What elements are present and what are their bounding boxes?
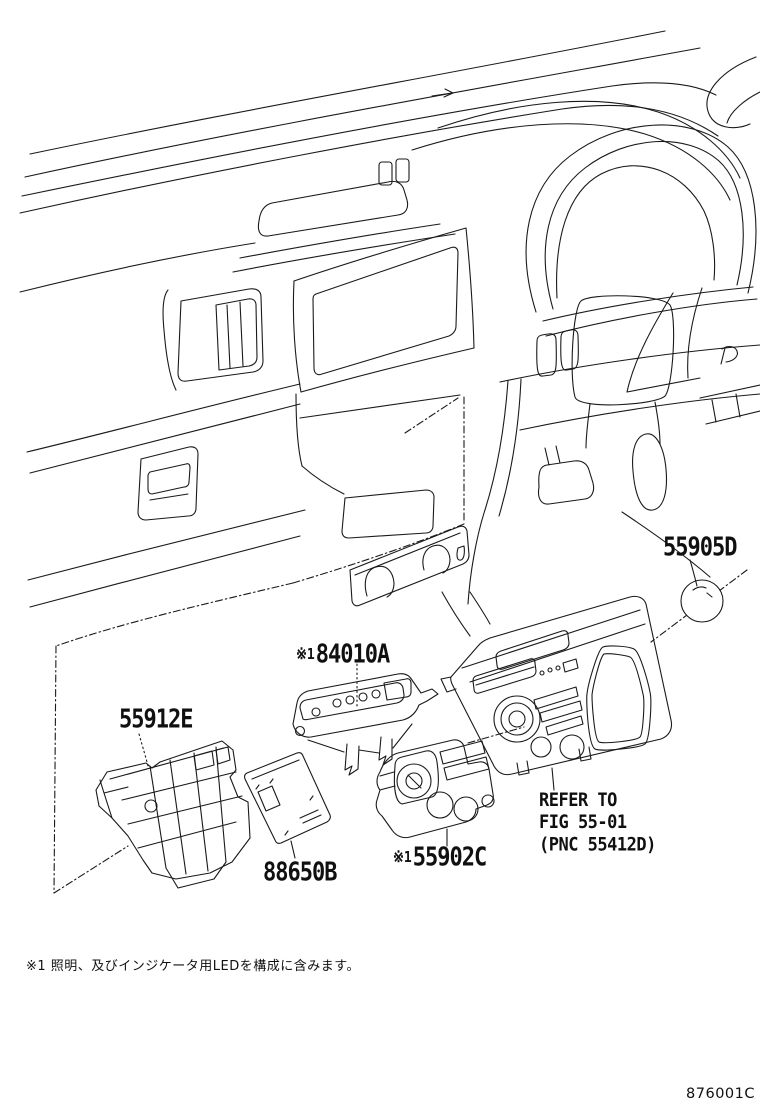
part-55905d-knob-drawing [681,580,723,622]
callout-55912e[interactable]: 55912E [118,705,192,735]
part-55912e-drawing [96,741,250,888]
part-finish-panel-drawing [441,596,672,775]
part-88650b-drawing [245,753,331,844]
dashboard-line-art [0,0,760,1112]
steering-wheel [500,125,760,577]
reference-note-line1: REFER TO [539,789,656,811]
callout-55902c[interactable]: ※155902C [393,843,486,873]
callout-55902c-label: 55902C [413,843,486,873]
a-pillar-curves [707,57,760,128]
callout-84010a-label: 84010A [316,640,389,670]
part-55902c-drawing [376,740,494,838]
part-84010a-drawing [293,674,438,775]
footnote-text: ※1 照明、及びインジケータ用LEDを構成に含みます。 [26,955,360,974]
reference-note-line3: (PNC 55412D) [539,834,656,856]
cluster-hood [412,101,740,200]
figure-code: 876001C [686,1086,755,1102]
callout-55905d[interactable]: 55905D [662,533,736,563]
callout-55912e-label: 55912E [119,705,192,735]
callout-55902c-prefix: ※1 [393,849,412,867]
parts-diagram-page: 55905D ※184010A 55912E 88650B ※155902C R… [0,0,760,1112]
callout-55905d-label: 55905D [663,533,736,563]
reference-note[interactable]: REFER TO FIG 55-01 (PNC 55412D) [539,789,656,856]
reference-note-line2: FIG 55-01 [539,811,656,833]
callout-84010a-prefix: ※1 [296,646,315,664]
callout-88650b[interactable]: 88650B [262,858,336,888]
dash-left [20,243,305,607]
dash-top-vent [233,159,455,272]
callout-84010a[interactable]: ※184010A [296,640,389,670]
callout-88650b-label: 88650B [263,858,336,888]
